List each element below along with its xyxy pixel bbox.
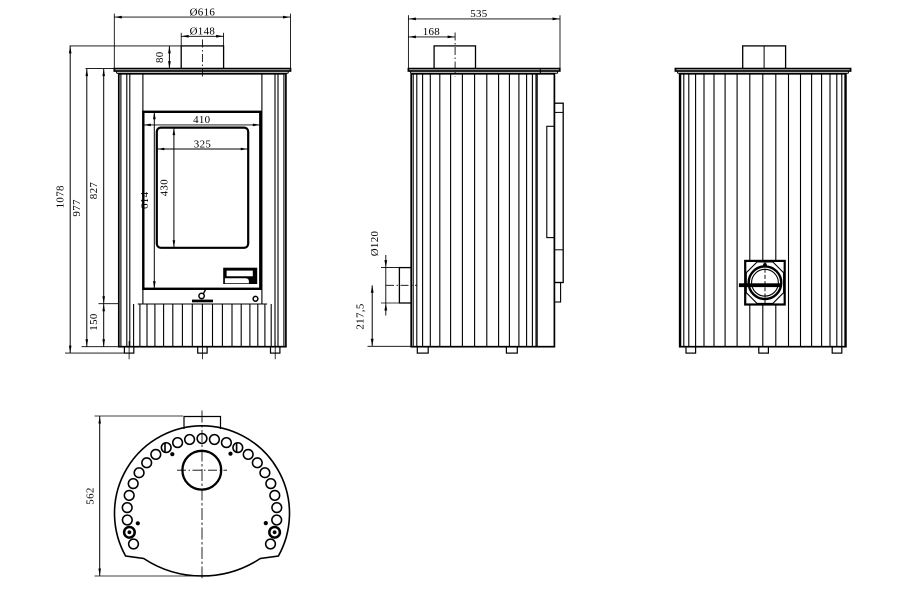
svg-text:1078: 1078 bbox=[54, 185, 66, 208]
svg-text:80: 80 bbox=[154, 51, 166, 63]
svg-text:977: 977 bbox=[71, 199, 83, 217]
svg-text:430: 430 bbox=[159, 179, 171, 197]
svg-text:Ø148: Ø148 bbox=[190, 26, 216, 38]
svg-text:535: 535 bbox=[470, 8, 488, 20]
svg-text:168: 168 bbox=[423, 26, 441, 38]
svg-text:562: 562 bbox=[85, 487, 97, 504]
svg-text:Ø616: Ø616 bbox=[190, 6, 216, 18]
svg-text:325: 325 bbox=[194, 138, 212, 150]
svg-text:217,5: 217,5 bbox=[354, 303, 366, 329]
svg-text:150: 150 bbox=[88, 313, 100, 331]
svg-text:Ø120: Ø120 bbox=[369, 230, 381, 256]
svg-text:614: 614 bbox=[139, 191, 151, 209]
svg-text:827: 827 bbox=[88, 182, 100, 200]
svg-text:410: 410 bbox=[193, 114, 211, 126]
